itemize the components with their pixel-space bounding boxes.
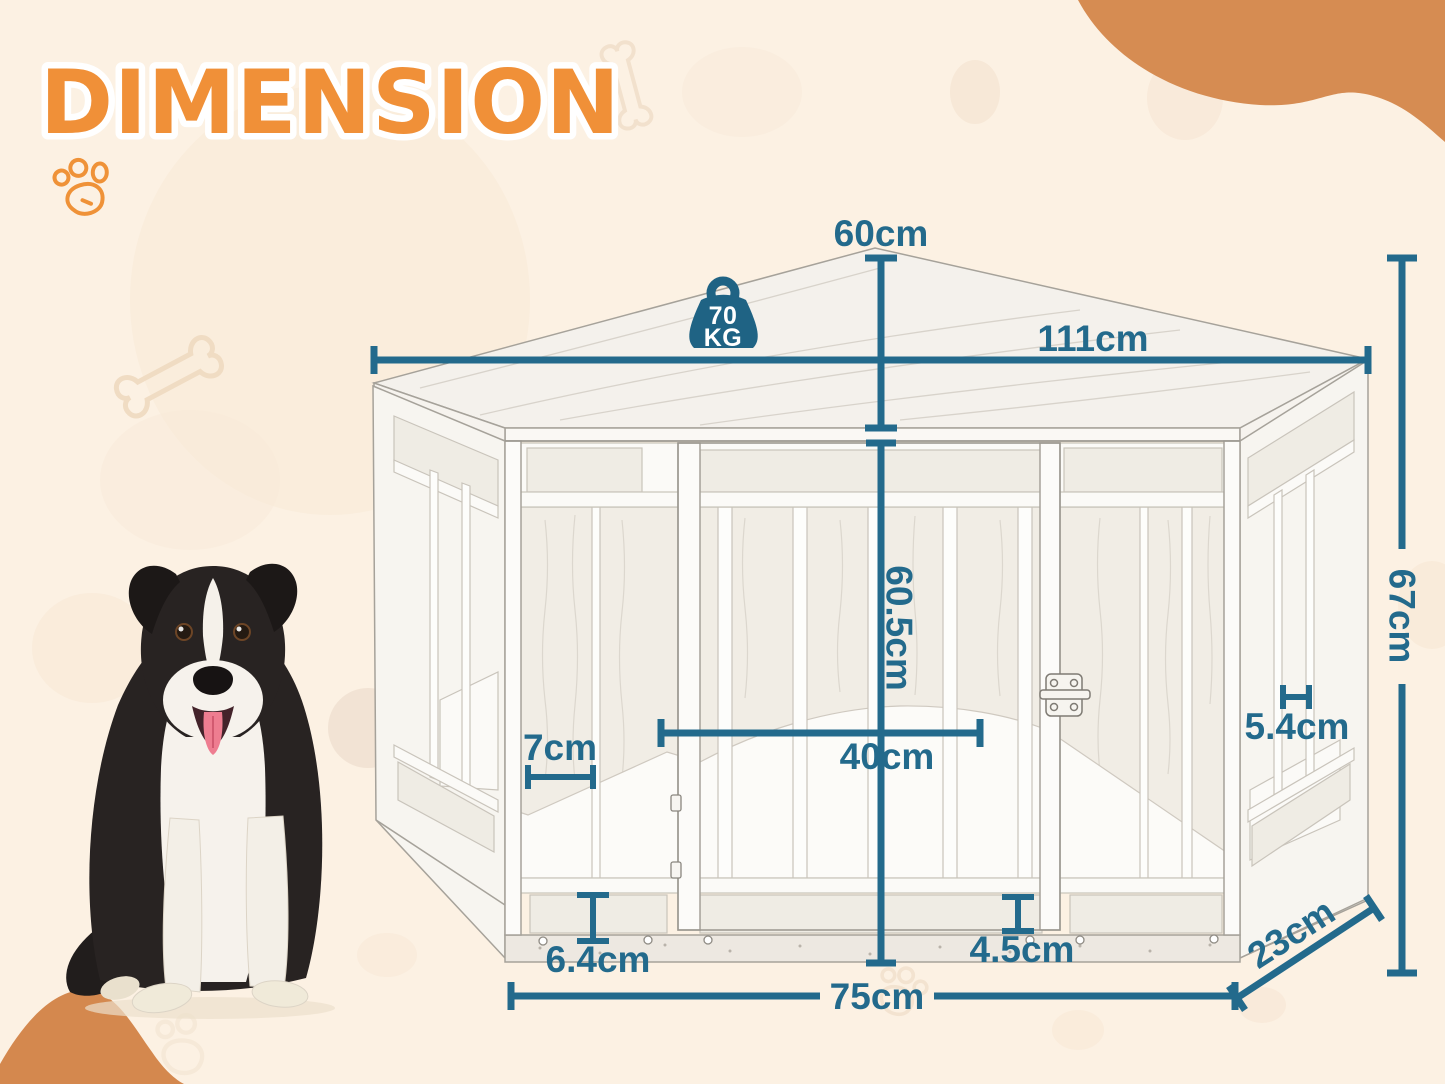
- paw-icon: [51, 151, 120, 220]
- mid-rail: [519, 492, 1226, 507]
- dog-eye: [234, 624, 250, 640]
- door-hinge: [671, 795, 681, 811]
- door-latch: [1040, 674, 1090, 716]
- dim-label-top-width: 111cm: [1037, 318, 1148, 359]
- dimension-infographic: DIMENSION 70 KG 60cm 111cm: [0, 0, 1445, 1084]
- kick-panel: [700, 895, 1042, 933]
- dim-label-door-width: 40cm: [840, 736, 935, 777]
- dim-label-front-width: 75cm: [830, 976, 925, 1017]
- dim-label-inner-height: 60.5cm: [879, 565, 920, 691]
- dim-label-overall-height: 67cm: [1382, 569, 1423, 664]
- dim-label-top-height: 60cm: [834, 213, 929, 254]
- corner-post: [1224, 441, 1240, 935]
- corner-blob-top-right: [1078, 0, 1445, 142]
- dog-eye-glint: [179, 627, 184, 632]
- dog-eye-glint: [237, 627, 242, 632]
- transom-panel: [1064, 448, 1222, 492]
- kick-panel: [1070, 895, 1222, 933]
- crate-right-side: [1240, 360, 1368, 958]
- dim-label-side-bar-gap: 5.4cm: [1245, 706, 1350, 747]
- dim-label-left-panel-width: 7cm: [523, 727, 597, 768]
- crate-sketch: [373, 248, 1368, 962]
- background-spot: [357, 933, 417, 977]
- paw-print-watermark: [158, 1015, 203, 1073]
- dog-front-leg: [246, 816, 288, 988]
- weight-unit: KG: [704, 324, 743, 352]
- background-spot: [682, 47, 802, 137]
- corner-post: [505, 441, 521, 935]
- background-spot: [100, 410, 280, 550]
- dim-label-bottom-panel-height: 6.4cm: [546, 939, 651, 980]
- dim-overall-height: 67cm: [1382, 258, 1423, 973]
- dim-front-width: 75cm: [511, 976, 1235, 1017]
- page-title: DIMENSION: [40, 51, 621, 154]
- door-stile: [678, 443, 700, 930]
- dim-label-bottom-rail-height: 4.5cm: [970, 929, 1075, 970]
- background-spot: [1052, 1010, 1104, 1050]
- dim-left-panel-width: 7cm: [523, 727, 597, 789]
- crate-left-side: [373, 386, 505, 958]
- dog-front-leg: [163, 818, 202, 992]
- door-hinge: [671, 862, 681, 878]
- kick-panel: [530, 895, 667, 933]
- transom-panel: [527, 448, 642, 492]
- infographic-canvas: DIMENSION 70 KG 60cm 111cm: [0, 0, 1445, 1084]
- transom-panel: [700, 450, 1042, 492]
- background-spot: [950, 60, 1000, 124]
- dog-eye: [176, 624, 192, 640]
- bottom-rail: [519, 878, 1226, 893]
